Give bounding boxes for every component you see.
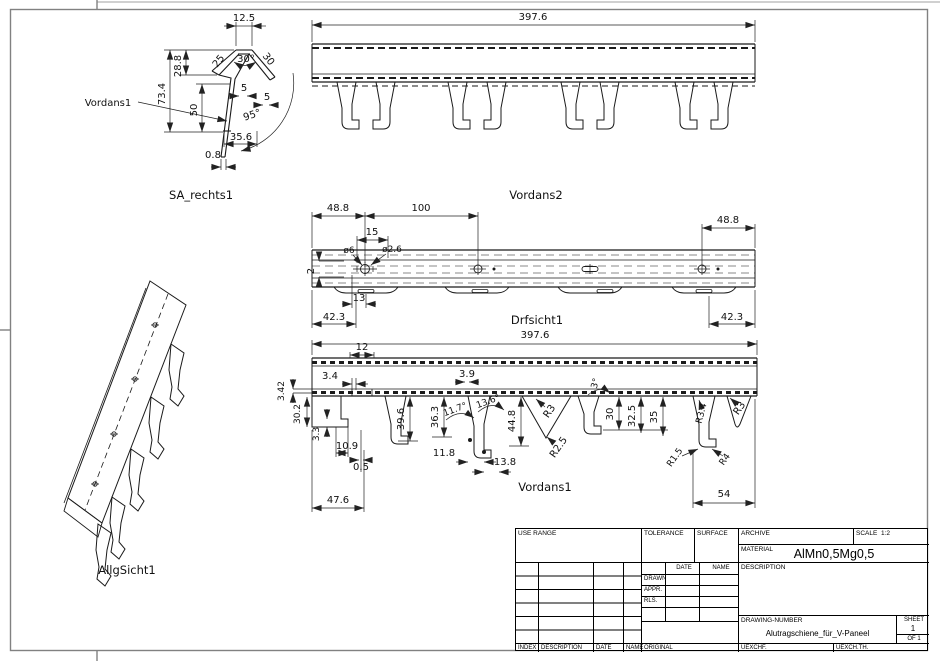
dim-right-span: 54	[718, 489, 731, 500]
dim-total-height: 73.4	[157, 83, 168, 105]
dim-v2-length: 397.6	[519, 12, 548, 23]
rls-label: RLS.	[642, 597, 657, 605]
of-cell: OF 1	[896, 634, 929, 643]
dim-a1: 11.7°	[442, 401, 468, 419]
view-drfsicht1: 48.8 100 15 2 ø6 ø2.6 13 42.3 48.8 42.3 …	[306, 203, 755, 328]
dim-hole-pitch: 100	[411, 203, 430, 214]
sheet-value: 1	[897, 624, 929, 633]
dim-center-offset: 2	[306, 268, 317, 274]
revision-index-grid	[516, 562, 641, 643]
date2-cell: DATE	[593, 643, 623, 652]
name2-cell: NAME	[623, 643, 641, 652]
tolerance-cell: TOLERANCE	[641, 529, 694, 562]
caption-drfsicht1: Drfsicht1	[511, 313, 563, 327]
material-cell: MATERIAL AlMn0,5Mg0,5	[738, 544, 929, 562]
dim-foot-w: 10.9	[336, 441, 358, 452]
dim-slot-pos: 13	[353, 293, 366, 304]
dim-h5: 32.5	[627, 405, 638, 427]
dim-h2: 36.3	[430, 406, 441, 428]
signature-block: DATE NAME DRAWN APPR. RLS.	[641, 562, 738, 643]
scale-cell: SCALE 1:2	[853, 529, 929, 544]
dim-v-angle: 30°	[237, 54, 255, 65]
material-value: AlMn0,5Mg0,5	[739, 547, 929, 561]
dim-w2: 13.8	[494, 457, 516, 468]
dim-h3: 44.8	[507, 410, 518, 432]
dim-w1: 11.8	[433, 448, 455, 459]
appr-label: APPR.	[642, 586, 662, 594]
hook-group	[337, 82, 733, 129]
dim-left-wall: 5	[241, 83, 247, 94]
drawing-number-value: Alutragschiene_für_V-Paneel	[739, 629, 896, 638]
dim-base-width: 35.6	[230, 132, 252, 143]
dim-slot-width: 12	[356, 342, 369, 353]
dim-right-flange: 30	[260, 51, 277, 68]
dim-upper-height: 28.8	[173, 55, 184, 77]
dim-r-side: R3.4	[695, 402, 710, 425]
archive-cell: ARCHIVE	[738, 529, 853, 544]
dim-web: 3.9	[459, 369, 475, 380]
caption-vordans2: Vordans2	[509, 188, 562, 202]
dim-r-notch: R2.5	[548, 435, 570, 460]
caption-allgsicht1: AllgSicht1	[98, 563, 156, 577]
dim-h6: 35	[649, 411, 660, 424]
title-block: USE RANGE TOLERANCE SURFACE ARCHIVE SCAL…	[515, 528, 928, 651]
surface-cell: SURFACE	[694, 529, 738, 562]
view-sa-rechts1: 12.5 28.8 73.4 50 25 30° 30 5 5 95° 35.6…	[85, 13, 294, 202]
caption-sa-rechts1: SA_rechts1	[169, 188, 233, 202]
dim-left-depth: 30.2	[293, 404, 303, 424]
description-cell: DESCRIPTION	[738, 562, 929, 615]
view-allgsicht1: AllgSicht1	[64, 281, 186, 586]
uexchf-cell: UEXCHF.	[738, 643, 833, 652]
drawing-number-cell: DRAWING-NUMBER Alutragschiene_für_V-Pane…	[738, 615, 896, 643]
dim-h1: 39.6	[396, 408, 407, 430]
dim-hole-dia: ø6	[343, 246, 355, 256]
sheet-cell: SHEET 1	[896, 615, 929, 634]
name-header: NAME	[699, 564, 741, 572]
dim-r-top: R3	[542, 403, 559, 420]
index-label-cell: INDEX	[516, 643, 538, 652]
dim-band: 3.42	[277, 381, 287, 401]
dim-web-angle: 95°	[242, 108, 262, 124]
drf-dimensions	[312, 212, 755, 328]
dim-slot-length: 15	[366, 227, 379, 238]
leader-vordans1: Vordans1	[85, 98, 132, 109]
dim-right-end-offset: 48.8	[717, 215, 739, 226]
dim-right-wall: 5	[264, 92, 270, 103]
caption-vordans1: Vordans1	[518, 480, 571, 494]
description2-cell: DESCRIPTION	[538, 643, 593, 652]
dim-left-flange: 25	[211, 53, 228, 70]
dim-gap: 0.5	[353, 462, 369, 473]
dim-cap-width: 12.5	[233, 13, 255, 24]
uexchth-cell: UEXCH.TH.	[833, 643, 929, 652]
original-cell: ORIGINAL	[641, 643, 738, 652]
dim-right-foot-offset: 42.3	[721, 312, 743, 323]
use-range-cell: USE RANGE	[516, 529, 641, 562]
dim-foot-h: 3.3	[312, 427, 322, 441]
dim-left-span: 47.6	[327, 495, 349, 506]
scale-value: 1:2	[881, 530, 890, 537]
dim-web-height: 50	[189, 104, 200, 117]
hole-symbols	[353, 262, 720, 276]
dim-wall-thickness: 0.8	[205, 150, 221, 161]
dim-r-foot1: R1.5	[665, 447, 685, 470]
dim-pilot-hole-dia: ø2.6	[382, 245, 402, 255]
dim-h4: 30	[605, 408, 616, 421]
dim-a3: 3°	[590, 377, 602, 389]
dim-left-foot-offset: 42.3	[323, 312, 345, 323]
view-vordans2: 397.6 Vordans2	[312, 12, 755, 202]
dim-left-end-offset: 48.8	[327, 203, 349, 214]
dim-v1-length: 397.6	[521, 330, 550, 341]
dim-r-top2: R3	[732, 400, 749, 417]
drawn-label: DRAWN	[642, 575, 666, 583]
drawing-sheet: 12.5 28.8 73.4 50 25 30° 30 5 5 95° 35.6…	[0, 0, 940, 661]
dim-lip: 3.4	[322, 371, 338, 382]
date-header: DATE	[665, 564, 701, 572]
view-vordans1: 397.6 12 3.4 3.42 30.2 3.3 10.9 0.5 47.6…	[277, 330, 757, 512]
